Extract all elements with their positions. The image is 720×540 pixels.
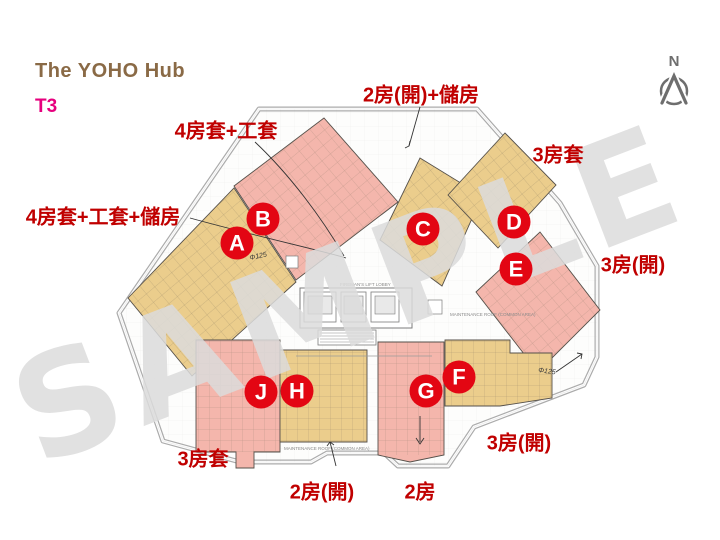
type-label-bottom-left: 3房套 — [177, 443, 228, 472]
type-label-top-right: 3房套 — [532, 139, 583, 168]
type-label-upper-left: 4房套+工套 — [175, 115, 278, 144]
type-label-bottom-right: 3房(開) — [487, 427, 551, 456]
unit-marker-g: G — [410, 375, 443, 408]
type-label-bottom-mid: 2房 — [404, 476, 435, 505]
unit-marker-j: J — [245, 376, 278, 409]
maintenance-note-1: MAINTENANCE ROOF (COMMON AREA) — [284, 446, 370, 451]
unit-marker-d: D — [498, 206, 531, 239]
type-label-right: 3房(開) — [601, 249, 665, 278]
type-label-top-center: 2房(開)+儲房 — [363, 79, 479, 108]
lift-lobby-note: FIREMAN'S LIFT LOBBY — [340, 282, 391, 287]
maintenance-note-2: MAINTENANCE ROOF (COMMON AREA) — [450, 312, 536, 317]
unit-marker-f: F — [443, 361, 476, 394]
type-label-bottom-center: 2房(開) — [290, 476, 354, 505]
unit-marker-e: E — [500, 253, 533, 286]
unit-marker-c: C — [407, 213, 440, 246]
slide: The YOHO Hub T3 N — [0, 0, 720, 540]
type-label-left: 4房套+工套+儲房 — [26, 201, 180, 230]
unit-marker-a: A — [221, 227, 254, 260]
unit-marker-h: H — [281, 375, 314, 408]
unit-marker-b: B — [247, 203, 280, 236]
